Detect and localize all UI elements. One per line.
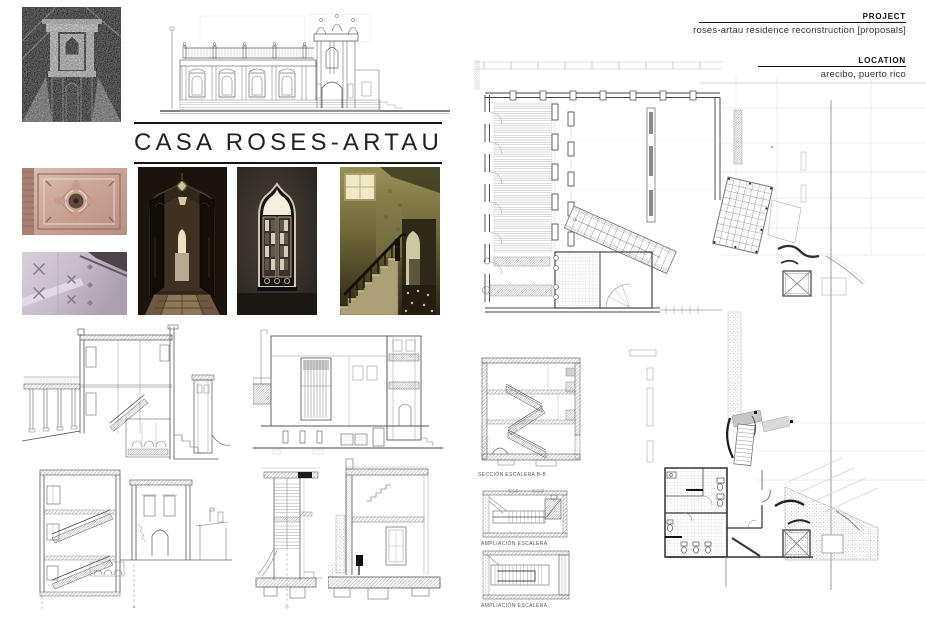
stair-section-drawing	[14, 464, 232, 610]
stencil-wall-photo	[22, 252, 127, 315]
stairwell-photo	[340, 167, 440, 315]
doorway-photo	[138, 167, 227, 315]
elevator-plan-upper	[783, 271, 811, 296]
strip-skylight	[647, 108, 655, 222]
caption-stair-enlargement-2: AMPLIACIÓN ESCALERA	[481, 603, 573, 609]
caption-stair-enlargement-1: AMPLIACIÓN ESCALERA	[481, 541, 571, 547]
trellis-skylight	[713, 177, 773, 254]
party-wall	[728, 312, 741, 422]
long-section-drawing	[22, 323, 232, 463]
page-title: CASA ROSES-ARTAU	[134, 129, 443, 157]
facade-elevation-drawing	[160, 10, 450, 118]
project-header: PROJECT roses-artau residence reconstruc…	[620, 12, 906, 36]
arched-window-photo	[237, 167, 317, 315]
rear-elevation-drawing	[253, 328, 443, 466]
hall-floor-hatch	[494, 102, 552, 252]
wall-section-detail-drawing	[328, 453, 445, 615]
presentation-board: CASA ROSES-ARTAU PROJECT roses-artau res…	[0, 0, 926, 617]
stair-enlargement-figure-2: AMPLIACIÓN ESCALERA	[481, 549, 573, 609]
plaster-ceiling-photo	[22, 168, 127, 235]
tower-etching-photo	[22, 7, 121, 122]
stair-section-bb-figure: SECCIÓN ESCALERA B-B	[478, 356, 588, 480]
lower-plan	[665, 410, 878, 587]
planters	[483, 257, 553, 296]
title-block: CASA ROSES-ARTAU	[134, 122, 442, 164]
project-label: PROJECT	[620, 12, 906, 21]
project-rule	[699, 22, 906, 23]
spiral-stair-detail-drawing	[248, 460, 330, 612]
stair-enlargement-figure-1: AMPLIACIÓN ESCALERA	[481, 489, 571, 547]
project-value: roses-artau residence reconstruction [pr…	[620, 25, 906, 36]
caption-stair-section-bb: SECCIÓN ESCALERA B-B	[478, 472, 588, 478]
